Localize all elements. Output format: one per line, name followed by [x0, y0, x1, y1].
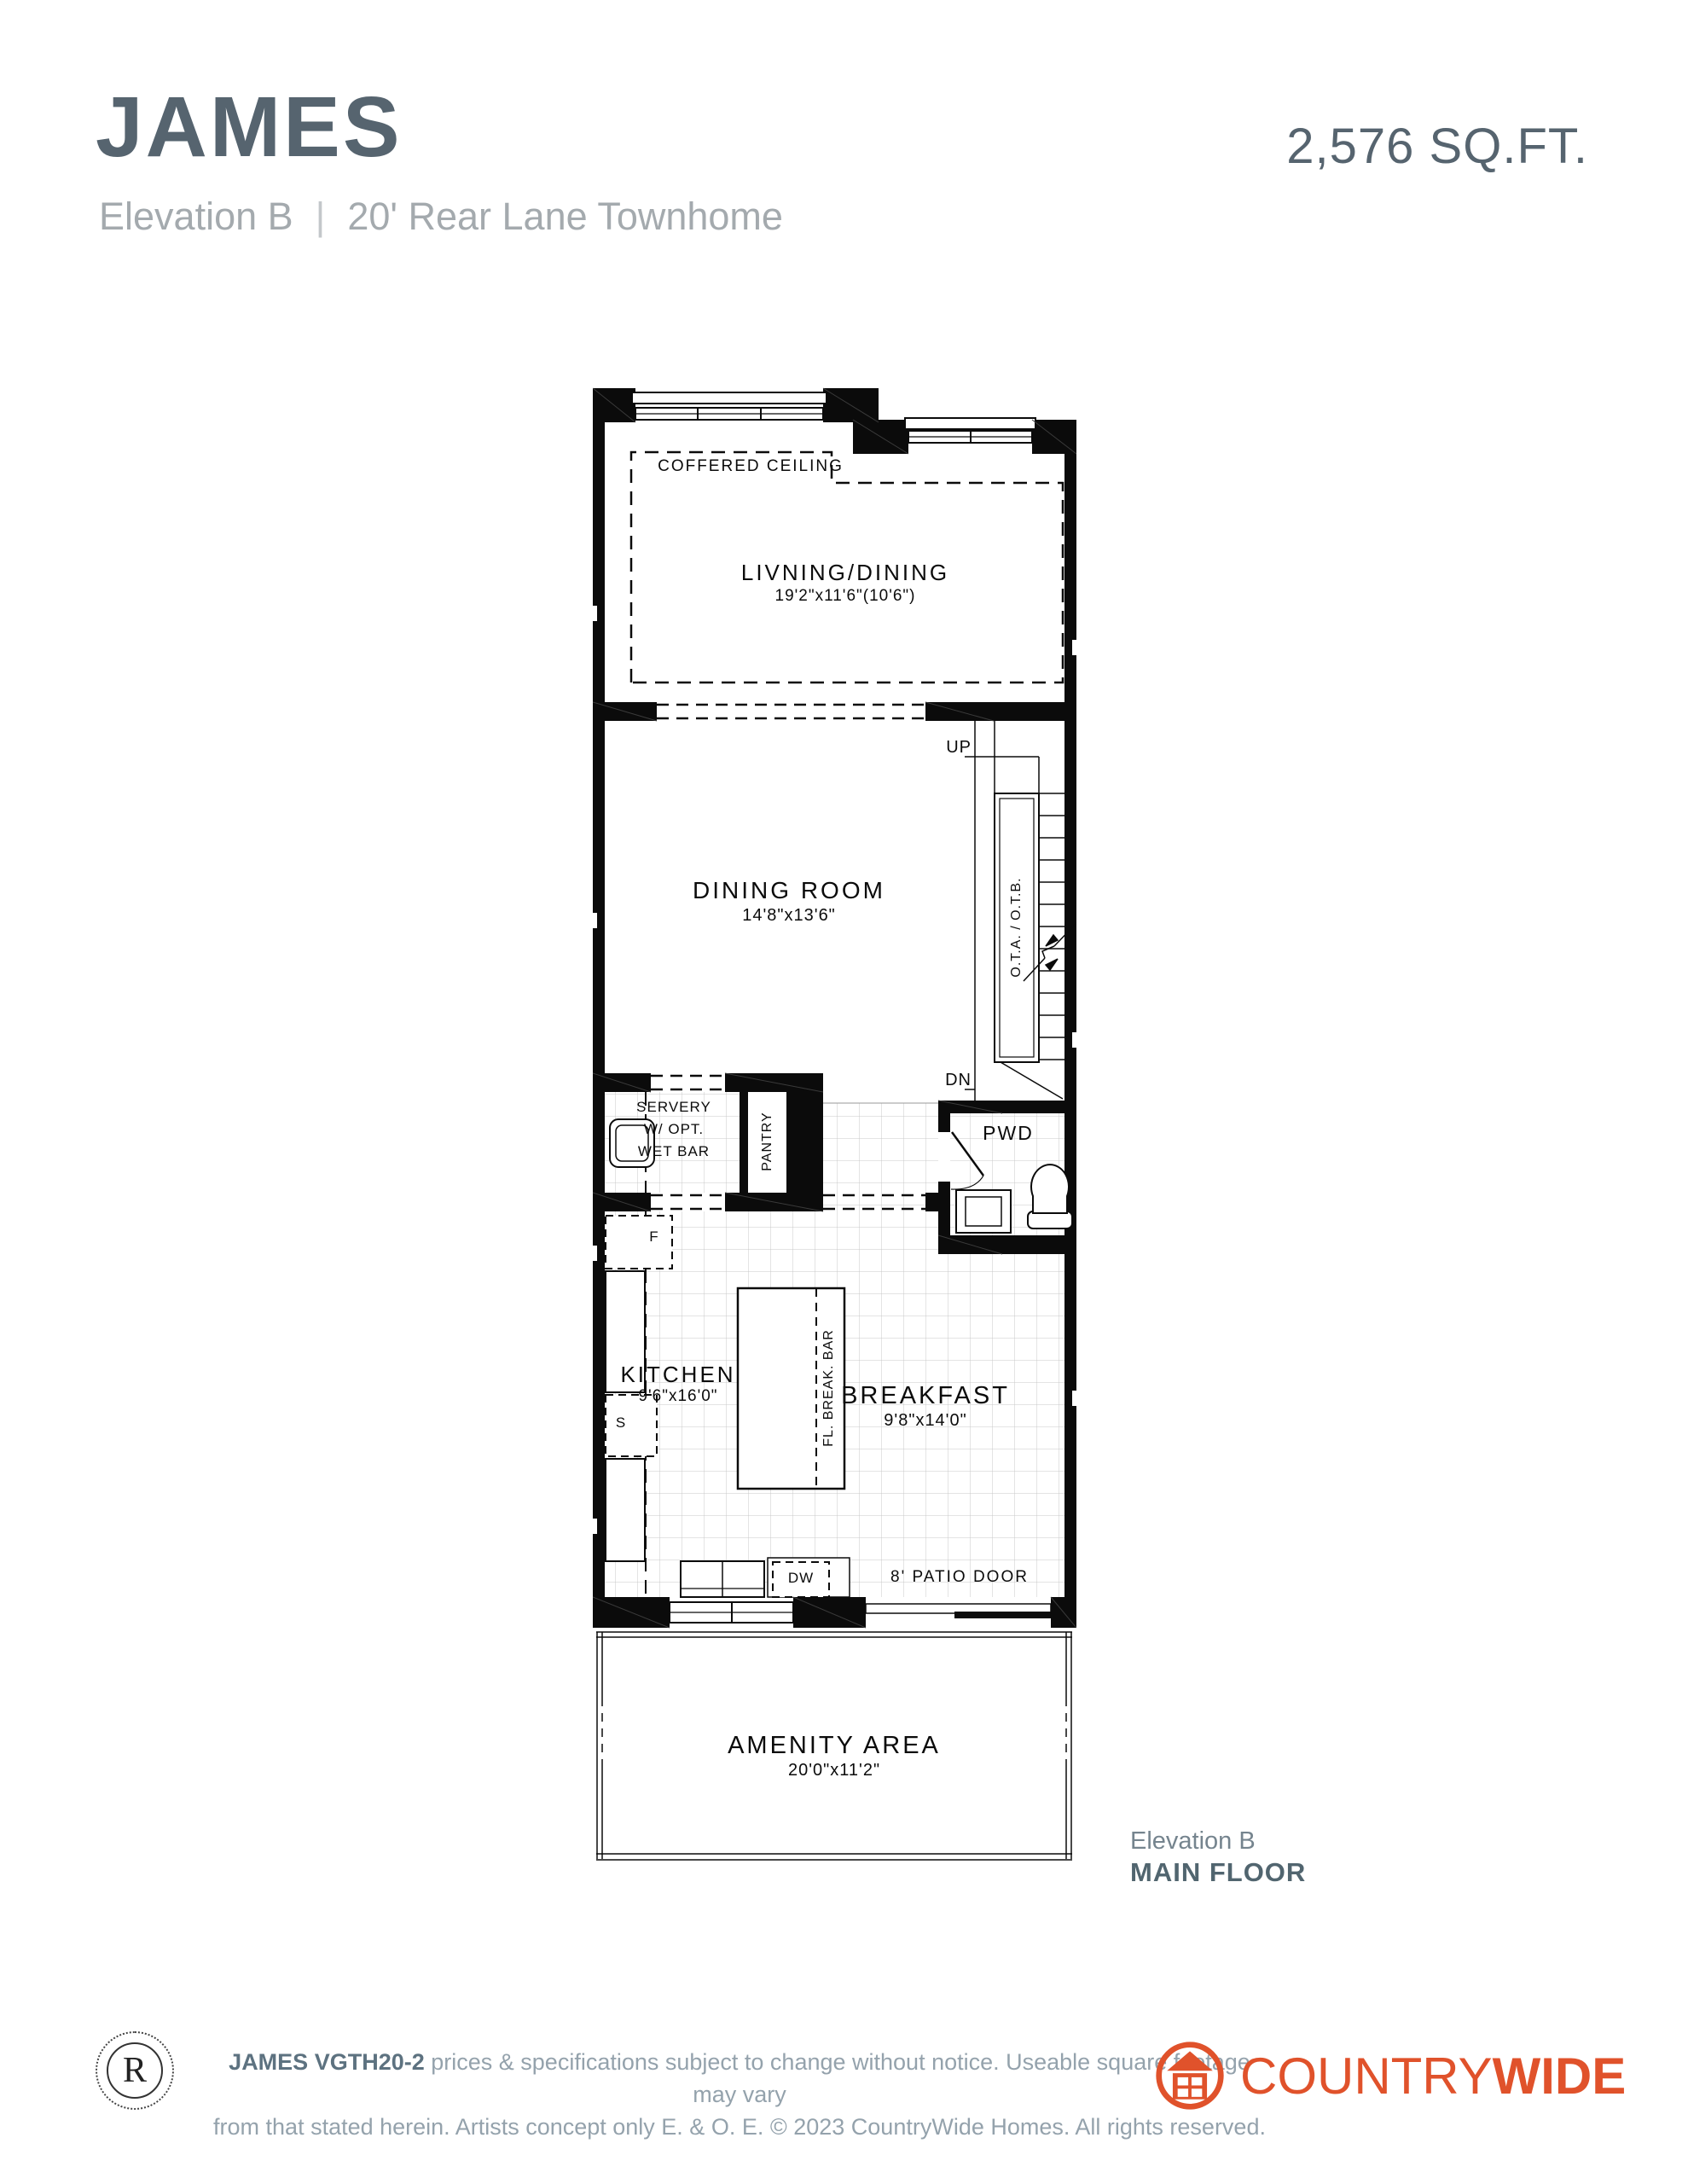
wordmark-wide: WIDE: [1493, 2047, 1627, 2105]
floor-plan: COFFERED CEILING LIVNING/DINING 19'2"x11…: [593, 384, 1076, 1868]
patio-door: [866, 1604, 1051, 1618]
countrywide-wordmark: COUNTRYWIDE: [1240, 2047, 1626, 2106]
servery-label-2: W/ OPT.: [644, 1121, 704, 1138]
room-label-breakfast: BREAKFAST: [841, 1382, 1010, 1410]
disclaimer-line2: from that stated herein. Artists concept…: [213, 2114, 1266, 2140]
disclaimer-text: JAMES VGTH20-2 prices & specifications s…: [213, 2046, 1266, 2143]
coffered-ceiling-label: COFFERED CEILING: [658, 457, 844, 476]
subtitle-separator: |: [316, 195, 326, 239]
room-label-kitchen: KITCHEN: [620, 1362, 735, 1388]
stairs-up-label: UP: [946, 738, 972, 758]
square-footage: 2,576 SQ.FT.: [1286, 118, 1588, 175]
room-dims-amenity: 20'0"x11'2": [788, 1761, 880, 1780]
room-dims-dining: 14'8"x13'6": [742, 906, 836, 926]
plan-caption: Elevation B MAIN FLOOR: [1130, 1826, 1306, 1890]
page-title: JAMES: [96, 78, 403, 177]
disclaimer-model-code: JAMES VGTH20-2: [229, 2049, 425, 2075]
servery-label-3: WET BAR: [638, 1143, 710, 1160]
flyer-page: JAMES 2,576 SQ.FT. Elevation B | 20' Rea…: [0, 0, 1688, 2184]
wordmark-country: COUNTRY: [1240, 2047, 1493, 2105]
registered-trademark-seal: R: [96, 2031, 174, 2110]
fridge-box: [606, 1216, 672, 1269]
fridge-label: F: [649, 1228, 658, 1246]
elevation-label: Elevation B: [99, 195, 293, 239]
stairs-ota-otb-label: O.T.A. / O.T.B.: [1009, 877, 1024, 977]
powder-room-label: PWD: [983, 1122, 1034, 1145]
kitchen-counter-lower: [606, 1459, 645, 1561]
countrywide-logo: COUNTRYWIDE: [1153, 2039, 1626, 2112]
room-label-living-dining: LIVNING/DINING: [741, 560, 949, 586]
room-label-amenity: AMENITY AREA: [728, 1732, 941, 1760]
room-dims-kitchen: 9'6"x16'0": [638, 1387, 717, 1406]
pantry-label: PANTRY: [760, 1112, 775, 1170]
caption-elevation: Elevation B: [1130, 1826, 1306, 1856]
page-subtitle: Elevation B | 20' Rear Lane Townhome: [99, 195, 783, 239]
flush-breakfast-bar-label: FL. BREAK. BAR: [821, 1329, 837, 1447]
room-label-dining: DINING ROOM: [693, 877, 885, 904]
dishwasher-label: DW: [788, 1570, 814, 1587]
countrywide-house-icon: [1153, 2039, 1227, 2112]
room-dims-breakfast: 9'8"x14'0": [884, 1411, 966, 1431]
room-dims-living-dining: 19'2"x11'6"(10'6"): [775, 587, 916, 606]
stairs-dn-label: DN: [945, 1071, 972, 1090]
servery-label-1: SERVERY: [636, 1099, 711, 1116]
disclaimer-line1: prices & specifications subject to chang…: [425, 2049, 1250, 2107]
townhome-type-label: 20' Rear Lane Townhome: [347, 195, 783, 239]
registered-trademark-letter: R: [107, 2042, 163, 2099]
sink-label: S: [616, 1414, 626, 1432]
patio-door-label: 8' PATIO DOOR: [890, 1568, 1029, 1587]
caption-floor: MAIN FLOOR: [1130, 1856, 1306, 1890]
